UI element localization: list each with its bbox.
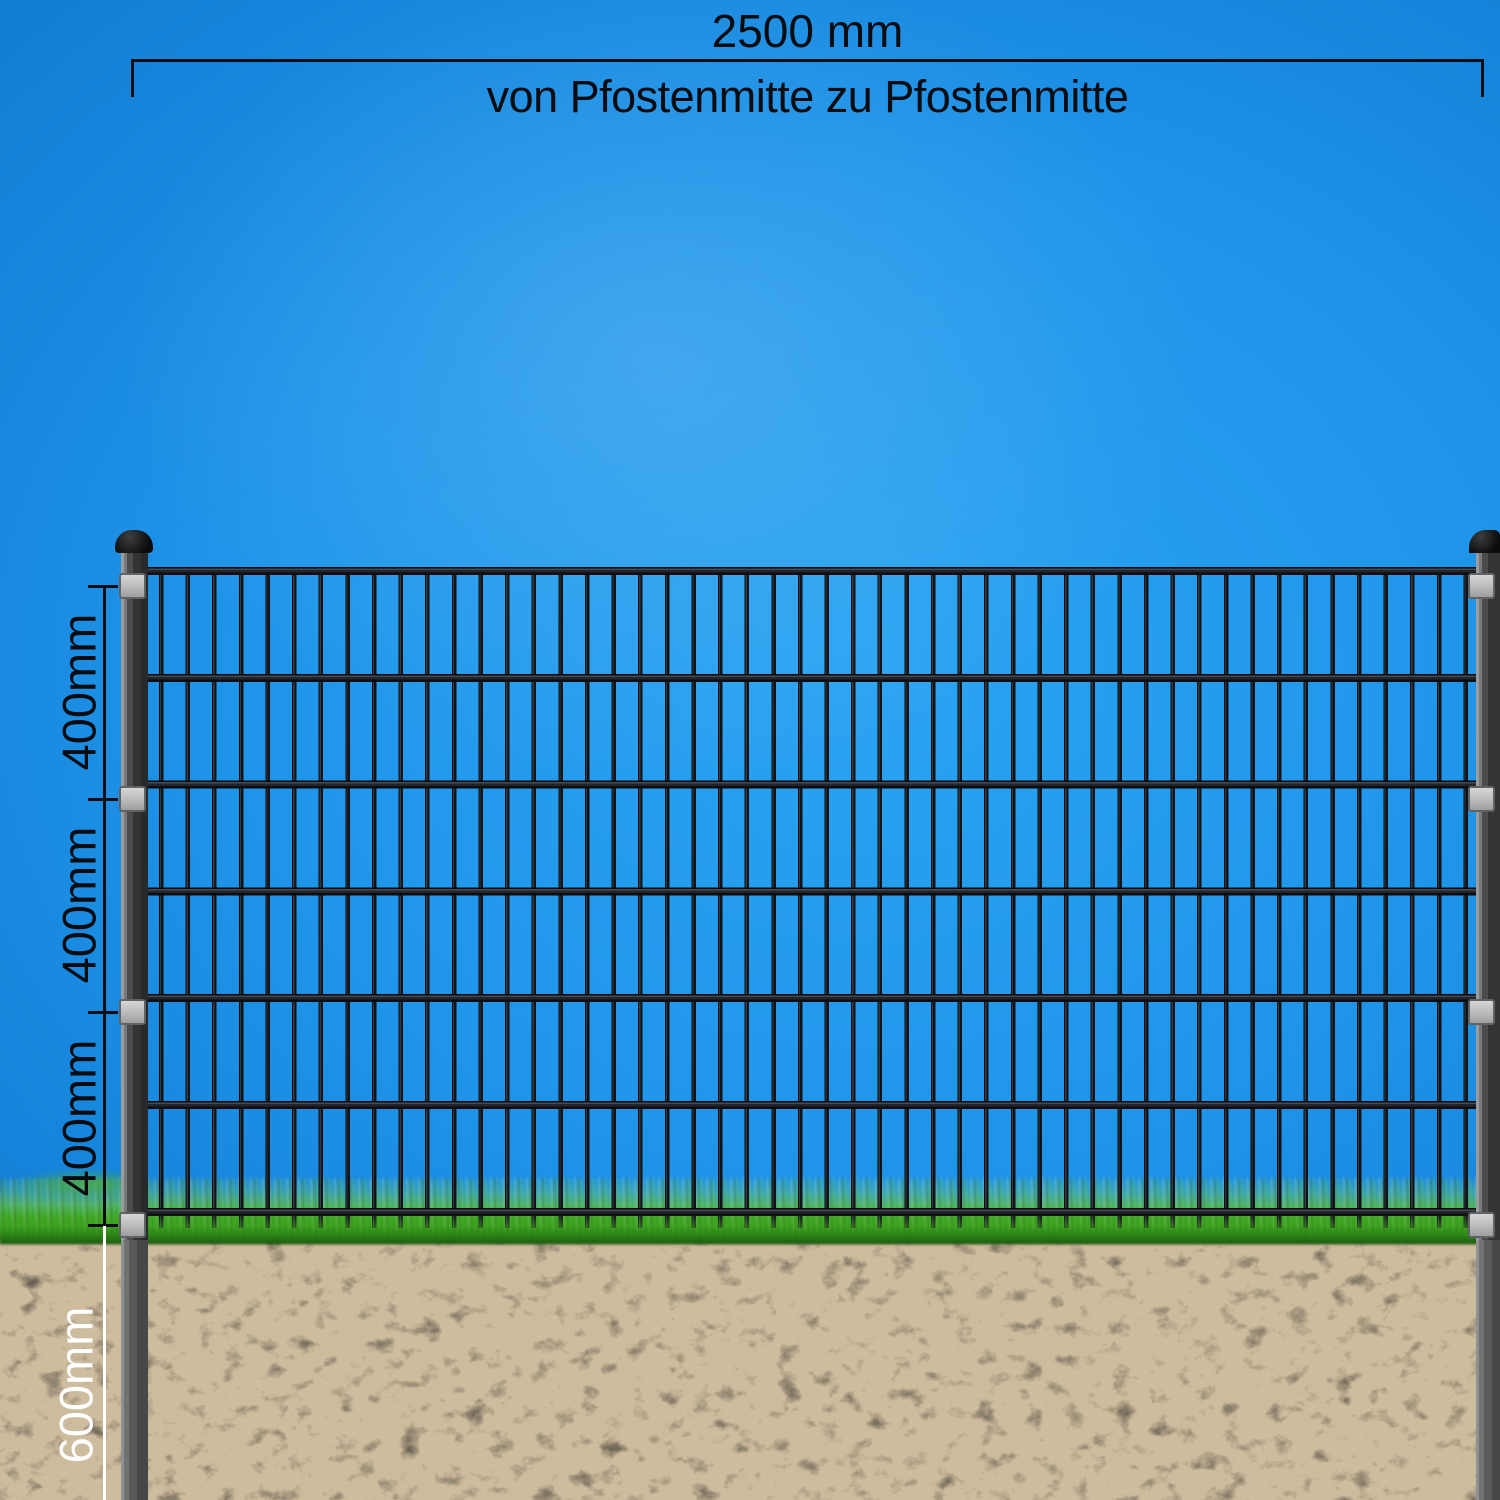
post-clamp-bracket bbox=[1468, 1212, 1495, 1238]
left-post-underground bbox=[121, 1240, 148, 1500]
section-height-label: 400mm bbox=[56, 1040, 103, 1197]
fence-product-diagram: 2500 mm von Pfostenmitte zu Pfostenmitte… bbox=[0, 0, 1500, 1500]
post-clamp-bracket bbox=[119, 786, 146, 812]
right-post-cap bbox=[1469, 530, 1500, 553]
section-height-label: 400mm bbox=[56, 614, 103, 771]
depth-dimension-line bbox=[103, 1226, 106, 1500]
horizontal-rails bbox=[147, 567, 1477, 1216]
fence-mesh-panel bbox=[147, 567, 1477, 1228]
post-clamp-bracket bbox=[1468, 786, 1495, 812]
post-clamp-bracket bbox=[1468, 999, 1495, 1025]
section-height-label: 400mm bbox=[56, 827, 103, 984]
grass-foreground-blur bbox=[0, 1214, 1500, 1244]
soil-noise-texture bbox=[0, 1238, 1500, 1500]
width-dimension-line bbox=[131, 59, 1484, 62]
height-dimension-tick bbox=[88, 798, 118, 801]
width-dimension-caption: von Pfostenmitte zu Pfostenmitte bbox=[131, 72, 1484, 122]
depth-dimension-label: 600mm bbox=[53, 1307, 100, 1464]
right-post-underground bbox=[1476, 1240, 1500, 1500]
soil-cross-section bbox=[0, 1238, 1500, 1500]
post-clamp-bracket bbox=[119, 999, 146, 1025]
post-clamp-bracket bbox=[119, 1212, 146, 1238]
width-dimension-value: 2500 mm bbox=[131, 6, 1484, 57]
height-dimension-tick bbox=[88, 1011, 118, 1014]
post-clamp-bracket bbox=[119, 573, 146, 599]
left-post-cap bbox=[115, 530, 153, 553]
post-clamp-bracket bbox=[1468, 573, 1495, 599]
height-dimension-tick bbox=[88, 585, 118, 588]
